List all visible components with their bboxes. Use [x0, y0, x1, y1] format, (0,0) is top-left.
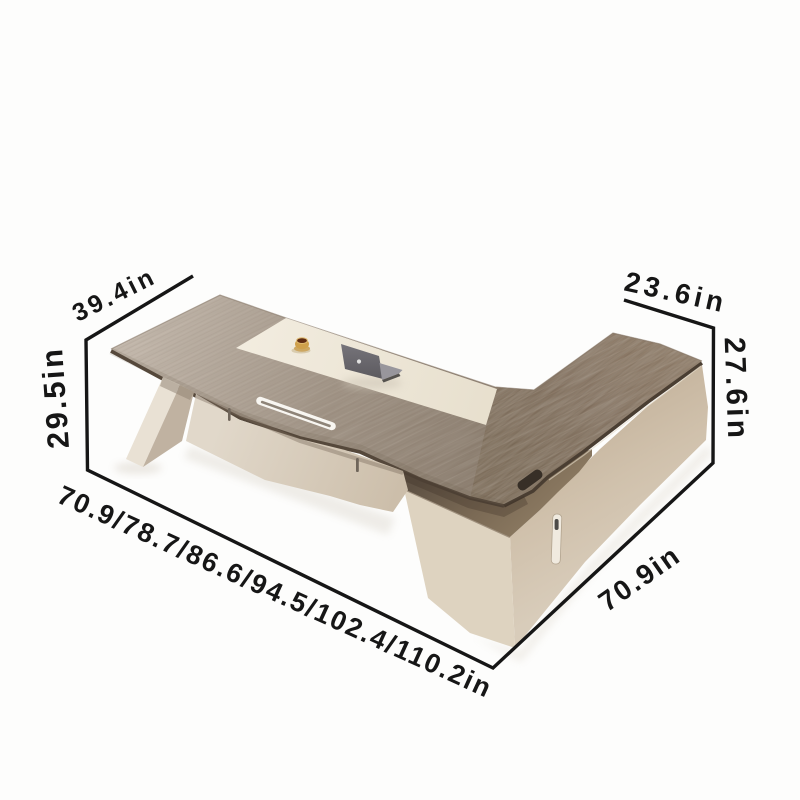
- svg-text:29.5in: 29.5in: [35, 346, 76, 450]
- svg-text:27.6in: 27.6in: [718, 337, 755, 442]
